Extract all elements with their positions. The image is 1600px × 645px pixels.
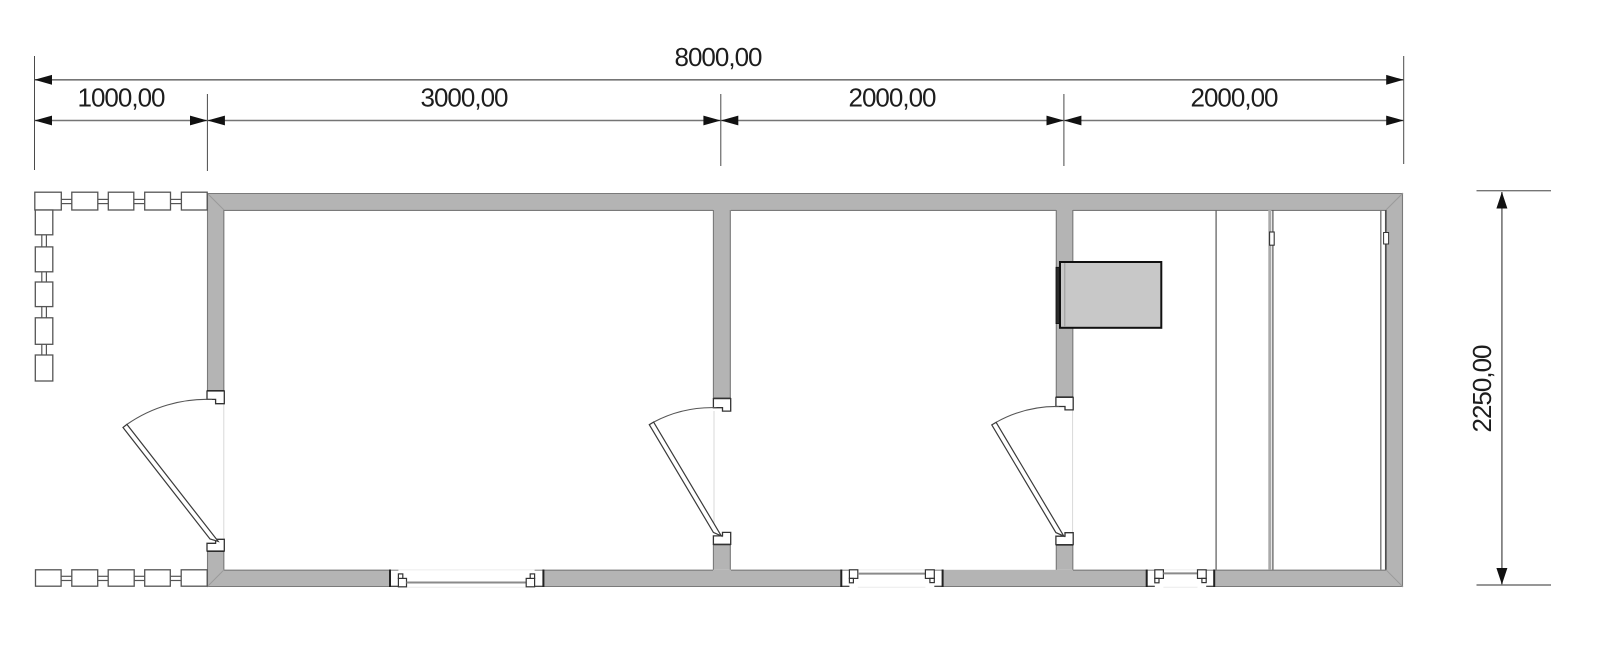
svg-text:2000,00: 2000,00 [1191,83,1279,113]
svg-text:8000,00: 8000,00 [675,42,763,72]
svg-text:1000,00: 1000,00 [78,83,166,113]
svg-text:2000,00: 2000,00 [849,83,937,113]
svg-text:3000,00: 3000,00 [421,83,509,113]
svg-text:2250,00: 2250,00 [1467,345,1497,433]
